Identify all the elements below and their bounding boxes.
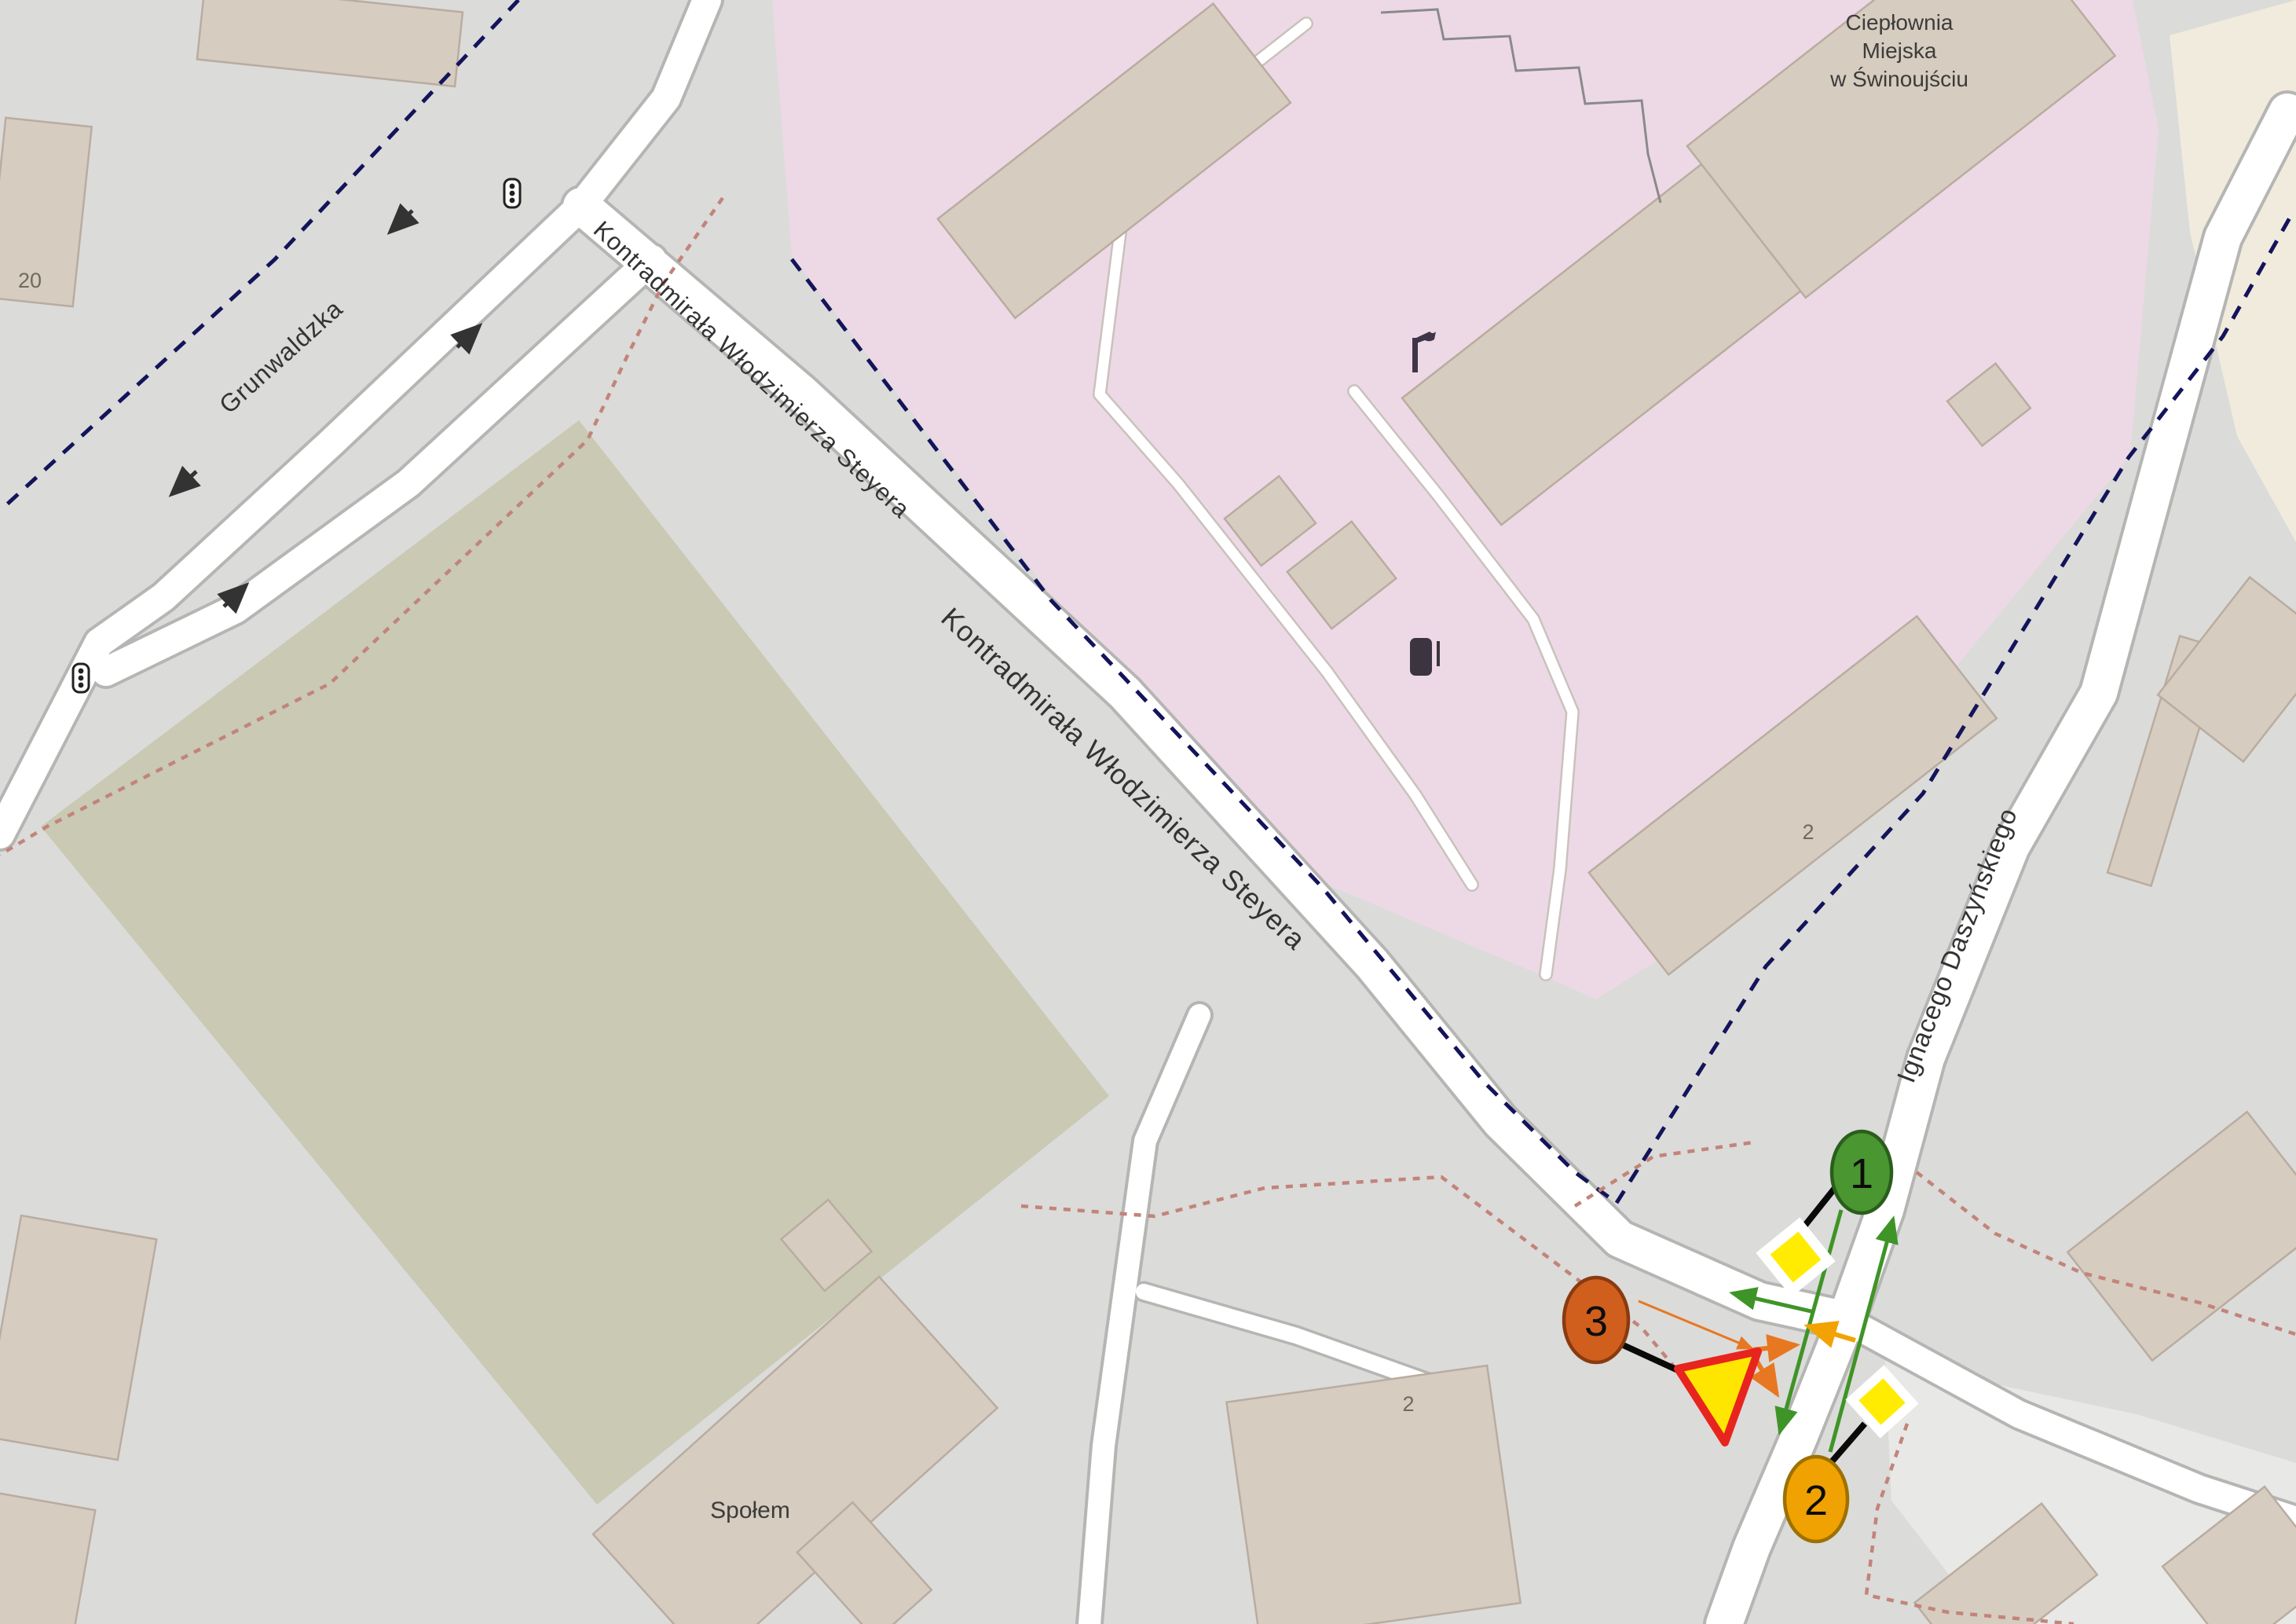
- marker-3: 3: [1564, 1278, 1628, 1362]
- marker-3-label: 3: [1584, 1298, 1608, 1345]
- heating-plant-label-line1: Ciepłownia: [1846, 10, 1954, 35]
- map-screenshot: Grunwaldzka Kontradmirała Włodzimierza S…: [0, 0, 2296, 1624]
- marker-2-label: 2: [1804, 1477, 1828, 1524]
- housenumber-2-industrial: 2: [1802, 820, 1814, 844]
- map-canvas[interactable]: Grunwaldzka Kontradmirała Włodzimierza S…: [0, 0, 2296, 1624]
- housenumber-20: 20: [18, 269, 42, 292]
- marker-1-label: 1: [1850, 1150, 1873, 1197]
- traffic-signal-icon: [504, 179, 520, 207]
- heating-plant-label-line3: w Świnoujściu: [1829, 66, 1968, 91]
- building-south-2: [1226, 1366, 1520, 1624]
- spolem-label: Społem: [710, 1498, 790, 1523]
- marker-1: 1: [1832, 1131, 1891, 1213]
- marker-2: 2: [1785, 1457, 1847, 1542]
- traffic-signal-icon: [73, 664, 89, 692]
- housenumber-2-south: 2: [1402, 1392, 1414, 1416]
- heating-plant-label-line2: Miejska: [1862, 38, 1937, 63]
